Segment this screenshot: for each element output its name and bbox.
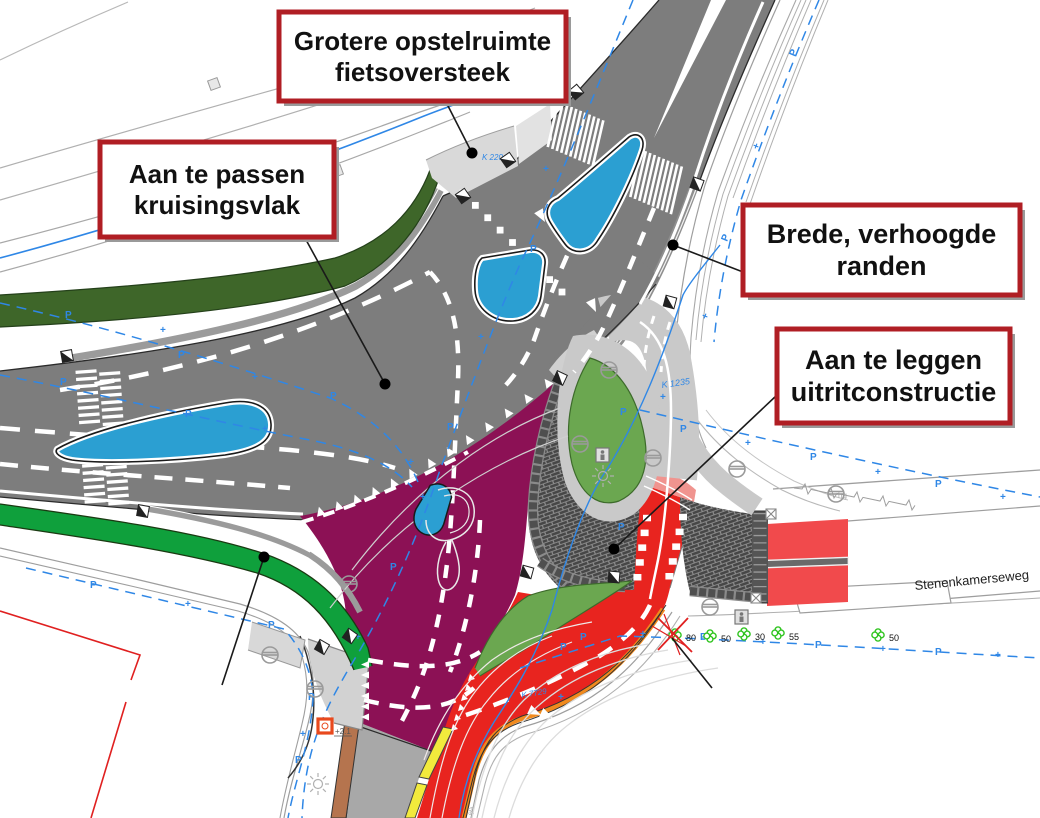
svg-text:P: P bbox=[530, 244, 537, 255]
svg-text:+: + bbox=[1000, 492, 1006, 503]
svg-text:+: + bbox=[185, 599, 191, 610]
svg-text:kruisingsvlak: kruisingsvlak bbox=[134, 190, 301, 220]
svg-text:+: + bbox=[640, 629, 646, 640]
svg-text:55: 55 bbox=[789, 632, 799, 642]
svg-text:+: + bbox=[160, 325, 166, 336]
svg-text:P: P bbox=[618, 522, 625, 533]
svg-text:50: 50 bbox=[889, 633, 899, 643]
svg-text:+: + bbox=[745, 438, 751, 449]
svg-text:P: P bbox=[330, 391, 337, 402]
svg-text:+: + bbox=[478, 332, 484, 343]
svg-text:P: P bbox=[935, 647, 942, 658]
svg-text:+: + bbox=[558, 692, 564, 703]
svg-text:P: P bbox=[178, 350, 185, 361]
svg-text:P: P bbox=[680, 424, 687, 435]
svg-text:30: 30 bbox=[755, 632, 765, 642]
svg-text:P: P bbox=[185, 409, 192, 420]
svg-text:Grotere opstelruimte: Grotere opstelruimte bbox=[294, 26, 551, 56]
svg-text:P: P bbox=[560, 642, 567, 653]
svg-text:P: P bbox=[810, 452, 817, 463]
svg-text:+2.1: +2.1 bbox=[335, 727, 351, 736]
svg-text:50: 50 bbox=[721, 634, 731, 644]
svg-text:P: P bbox=[447, 422, 454, 433]
svg-text:+: + bbox=[408, 457, 414, 468]
svg-text:P: P bbox=[65, 310, 72, 321]
svg-text:P: P bbox=[268, 620, 275, 631]
svg-text:randen: randen bbox=[836, 251, 926, 281]
svg-text:+: + bbox=[995, 650, 1001, 661]
svg-text:Aan te leggen: Aan te leggen bbox=[805, 345, 982, 375]
svg-text:+: + bbox=[420, 492, 426, 503]
svg-text:Aan te passen: Aan te passen bbox=[129, 159, 305, 189]
svg-text:+: + bbox=[875, 467, 881, 478]
svg-text:P: P bbox=[390, 562, 397, 573]
svg-text:P: P bbox=[580, 632, 587, 643]
svg-text:+: + bbox=[262, 424, 268, 435]
svg-text:P: P bbox=[90, 580, 97, 591]
svg-text:80: 80 bbox=[686, 633, 696, 643]
svg-text:+: + bbox=[300, 729, 306, 740]
svg-text:P: P bbox=[935, 479, 942, 490]
svg-text:+: + bbox=[660, 392, 666, 403]
svg-text:fietsoversteek: fietsoversteek bbox=[335, 57, 510, 87]
svg-text:uitritconstructie: uitritconstructie bbox=[791, 377, 997, 407]
svg-text:P: P bbox=[60, 377, 67, 388]
svg-text:P: P bbox=[295, 755, 302, 766]
svg-text:+: + bbox=[543, 164, 549, 175]
svg-text:+: + bbox=[880, 644, 886, 655]
svg-text:+: + bbox=[252, 372, 258, 383]
svg-text:Brede, verhoogde: Brede, verhoogde bbox=[767, 219, 997, 249]
svg-text:P: P bbox=[815, 640, 822, 651]
svg-text:P: P bbox=[620, 407, 627, 418]
